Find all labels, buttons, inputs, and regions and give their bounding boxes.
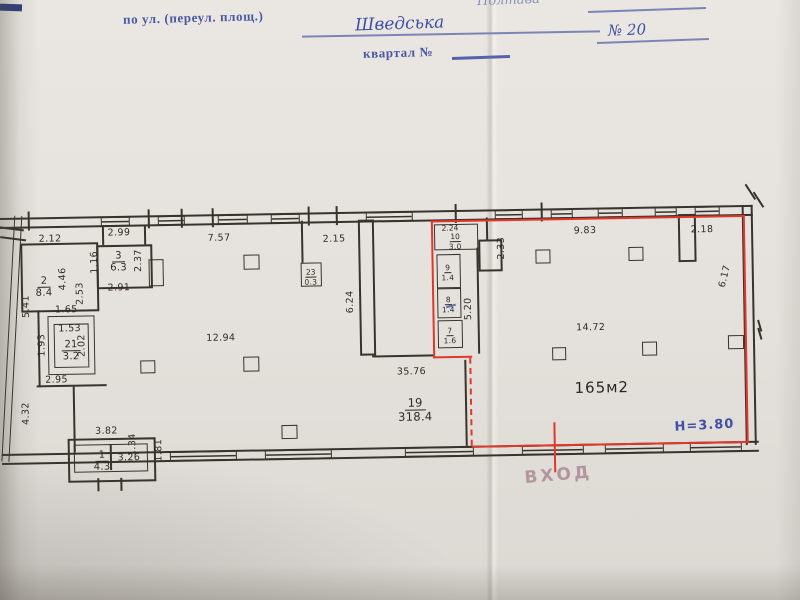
wall-stub <box>120 478 122 491</box>
dim-2-33: 2.33 <box>496 237 507 260</box>
boundary-left <box>1 216 22 462</box>
dim-1-93: 1.93 <box>36 334 47 357</box>
dim-12-94: 12.94 <box>206 332 235 344</box>
dim-6-24: 6.24 <box>345 290 356 313</box>
red-outline-step <box>433 356 472 359</box>
dim-2-12: 2.12 <box>39 233 62 244</box>
column <box>535 249 550 263</box>
room-label-19: 19318.4 <box>398 392 433 423</box>
dim-2-37: 2.37 <box>133 249 144 272</box>
dim-6-17: 6.17 <box>717 264 733 289</box>
window <box>598 208 623 217</box>
window <box>218 215 248 225</box>
dim-7-57: 7.57 <box>208 232 231 243</box>
column <box>140 360 155 373</box>
dimension-tick <box>28 211 30 230</box>
dim-2-53: 2.53 <box>74 282 85 305</box>
scanned-floor-plan-page: Полтава по ул. (переул. площ.) Шведська … <box>0 0 800 600</box>
room-label-7: 71.6 <box>443 319 456 345</box>
red-dashed-boundary <box>469 358 473 446</box>
window <box>265 449 332 459</box>
floor-plan: 2.12 2.99 1.16 2.37 4.46 2.53 2.91 1.65 … <box>0 188 800 512</box>
city-handwritten: Полтава <box>477 0 540 9</box>
room-label-3: 36.3 <box>110 244 127 273</box>
window <box>551 209 573 218</box>
ink-smudge <box>0 4 22 12</box>
room-label-2: 28.4 <box>35 270 52 299</box>
room-label-21: 213.2 <box>61 333 80 362</box>
window <box>695 206 720 215</box>
column <box>552 347 566 360</box>
dim-14-72: 14.72 <box>576 322 605 334</box>
dim-1-81: 1.81 <box>153 439 164 462</box>
wall-corridor <box>358 219 376 355</box>
column <box>642 342 657 356</box>
wall <box>372 354 434 357</box>
dim-2-99: 2.99 <box>108 227 131 238</box>
wall-stub <box>144 225 146 244</box>
dim-3-82: 3.82 <box>95 425 118 436</box>
form-line <box>588 7 706 13</box>
dim-1-16: 1.16 <box>89 251 100 274</box>
wall <box>464 360 468 446</box>
room-label-10: 103.0 <box>449 225 462 251</box>
dimension-tick <box>212 208 214 227</box>
dim-2-18: 2.18 <box>691 224 714 235</box>
dimension-tick <box>181 209 183 228</box>
column <box>281 425 297 439</box>
window <box>405 447 474 457</box>
dim-2-91: 2.91 <box>107 282 130 293</box>
column <box>628 247 643 261</box>
window <box>495 210 523 219</box>
form-line <box>302 30 600 37</box>
entrance-note: ВХОД <box>524 462 593 488</box>
dim-1-65: 1.65 <box>55 304 78 315</box>
room-label-1: 14.3 <box>93 444 110 473</box>
wall-step <box>148 259 163 286</box>
window <box>101 217 130 227</box>
street-form-label: по ул. (переул. площ.) <box>123 8 264 28</box>
dim-35-76: 35.76 <box>397 366 426 378</box>
ceiling-height-note: Н=3.80 <box>674 417 735 435</box>
marked-area-note: 165м2 <box>574 378 629 397</box>
dim-5-20: 5.20 <box>463 297 474 320</box>
room-label-8: 81.4 <box>442 288 455 314</box>
wall-stub <box>102 226 104 245</box>
dimension-tick <box>308 207 310 226</box>
window <box>170 451 237 461</box>
dim-2-15: 2.15 <box>323 233 346 244</box>
wall-stub <box>97 478 99 491</box>
dim-5-41: 5.41 <box>21 295 32 318</box>
window <box>271 214 300 224</box>
dim-4-46: 4.46 <box>57 267 68 290</box>
dim-1-34: 1.34 <box>127 433 138 456</box>
room-label-9: 91.4 <box>441 256 454 282</box>
wall-stub <box>301 221 304 263</box>
dimension-tick <box>336 206 338 225</box>
dim-9-83: 9.83 <box>574 225 597 236</box>
dim-2-95: 2.95 <box>45 374 68 385</box>
street-value-handwritten: Шведська <box>355 12 445 35</box>
wall-stub <box>728 335 744 349</box>
window <box>655 207 677 216</box>
column <box>243 254 259 269</box>
room-label-23: 230.3 <box>304 261 317 287</box>
wall-stub <box>678 214 697 262</box>
dim-4-32: 4.32 <box>20 402 31 425</box>
column <box>243 356 259 371</box>
block-underline <box>452 55 510 60</box>
block-form-label: квартал № <box>363 44 434 62</box>
house-number: № 20 <box>608 20 647 39</box>
dimension-tick <box>148 209 150 228</box>
